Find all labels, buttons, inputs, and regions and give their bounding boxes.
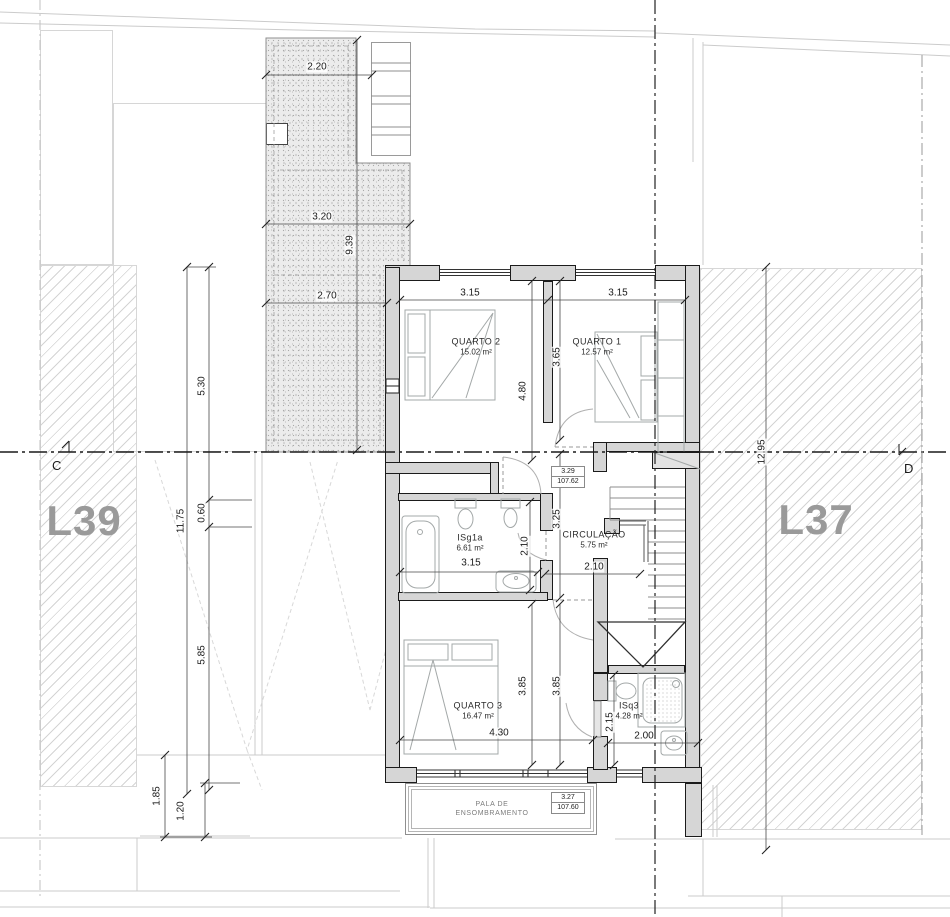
dimension-label: 3.15 [460,558,481,569]
dimension-label: 4.30 [488,728,509,739]
canopy-label: PALA DE ENSOMBRAMENTO [455,800,528,818]
neighbor-building-outline [40,30,113,265]
dimension-label: 0.60 [197,502,208,523]
dimension-label: 4.80 [518,380,529,401]
wall-bottom-3 [642,767,702,783]
elevation-marker: 3.27107.60 [551,792,585,814]
elevation-level: 3.27 [552,793,584,803]
wall-bottom-1 [385,767,417,783]
terrace-pillar [266,123,288,145]
dimension-label: 2.10 [520,535,531,556]
dimension-label: 9.39 [345,234,356,255]
wall-isq3-left-b [593,736,608,770]
dimension-label: 3.65 [552,346,563,367]
room-area: 15.02 m² [452,348,501,358]
wall-top-2 [510,265,576,281]
canopy-label-line1: PALA DE [476,801,509,808]
dimension-label: 12.95 [757,438,768,465]
room-label-isq3: ISq34.28 m² [615,701,642,722]
dimension-label: 3.20 [311,212,332,223]
room-name: CIRCULAÇÃO [562,530,625,541]
room-area: 5.75 m² [562,541,625,551]
house-floor-nook [598,783,685,837]
room-label-quarto2: QUARTO 215.02 m² [452,337,501,358]
room-name: ISq3 [615,701,642,712]
room-name: ISg1a [456,533,483,544]
room-name: QUARTO 2 [452,337,501,348]
dimension-label: 3.85 [552,675,563,696]
dimension-label: 2.70 [316,291,337,302]
wall-q2-bottom [385,462,498,474]
dimension-label: 11.75 [176,508,187,534]
room-label-isg1a: ISg1a6.61 m² [456,533,483,554]
room-area: 12.57 m² [573,348,622,358]
room-label-circulacao: CIRCULAÇÃO5.75 m² [562,530,625,551]
dimension-label: 2.00 [633,731,654,742]
room-label-quarto3: QUARTO 316.47 m² [454,701,503,722]
floor-plan-canvas: L39 L37 C D PALA DE ENSOMBRAMENTO QUARTO… [0,0,950,917]
section-marker-d: D [904,461,913,476]
dimension-label: 2.10 [583,562,604,573]
canopy-label-line2: ENSOMBRAMENTO [455,810,528,817]
wall-bath-top [398,493,553,501]
elevation-level: 3.29 [552,467,584,477]
room-area: 6.61 m² [456,544,483,554]
wall-bath-bottom [398,592,548,601]
lot-right-hatch [700,268,922,830]
wall-isq3-top [608,665,685,674]
wall-right [685,265,700,783]
dimension-label: 3.85 [518,675,529,696]
dimension-label: 2.20 [306,62,327,73]
room-name: QUARTO 1 [573,337,622,348]
dimension-label: 3.15 [607,288,628,299]
dimension-label: 5.85 [197,644,208,665]
dimension-label: 3.25 [552,508,563,529]
elevation-datum: 107.62 [552,477,584,487]
wall-left [385,267,400,783]
shower-floor-texture [645,679,681,723]
elevation-datum: 107.60 [552,803,584,813]
closet-q1 [652,452,700,469]
room-name: QUARTO 3 [454,701,503,712]
dimension-label: 2.15 [605,711,616,732]
exterior-steps [371,42,411,156]
room-area: 4.28 m² [615,712,642,722]
dimension-label: 1.20 [176,800,187,821]
lot-label-right: L37 [778,496,853,544]
dimension-label: 3.15 [459,288,480,299]
wall-stair-left [593,558,608,673]
elevation-marker: 3.29107.62 [551,466,585,488]
wall-q1-bottom [593,442,700,452]
room-label-quarto1: QUARTO 112.57 m² [573,337,622,358]
wall-right-lower [685,783,702,837]
wall-isq3-left-a [593,673,608,701]
section-marker-c: C [52,458,61,473]
lot-label-left: L39 [46,497,121,545]
dimension-label: 5.30 [197,375,208,396]
room-area: 16.47 m² [454,712,503,722]
wall-hall-stub [593,442,607,472]
dimension-label: 1.85 [152,785,163,806]
